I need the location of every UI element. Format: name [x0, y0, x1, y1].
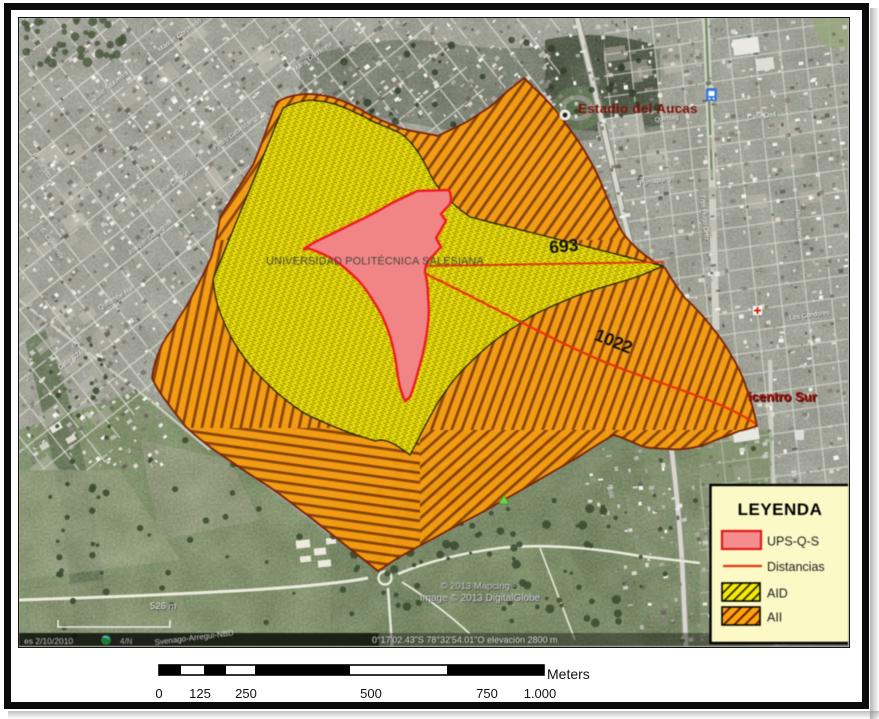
svg-text:es 2/10/2010: es 2/10/2010: [24, 636, 73, 646]
svg-text:Image © 2013 DigitalGlobe: Image © 2013 DigitalGlobe: [419, 593, 540, 604]
svg-text:250: 250: [235, 686, 257, 701]
svg-text:526 m: 526 m: [150, 601, 176, 612]
svg-text:1.000: 1.000: [524, 686, 557, 701]
svg-text:0°17'02.43"S 78°32'54.01"O: 0°17'02.43"S 78°32'54.01"O elevación 280…: [372, 635, 558, 645]
svg-text:icentro Sur: icentro Sur: [748, 389, 817, 404]
svg-text:500: 500: [360, 686, 382, 701]
svg-text:0: 0: [155, 686, 162, 701]
svg-text:UNIVERSIDAD POLITÉCNICA SALESI: UNIVERSIDAD POLITÉCNICA SALESIANA: [266, 254, 484, 267]
svg-text:Estadio del Aucas: Estadio del Aucas: [578, 101, 698, 116]
svg-text:© 2013 Mapcing -: © 2013 Mapcing -: [440, 581, 515, 592]
svg-text:UPS-Q-S: UPS-Q-S: [767, 534, 819, 548]
svg-text:Distancias: Distancias: [767, 560, 825, 574]
svg-text:4/N: 4/N: [120, 637, 133, 646]
svg-text:AID: AID: [767, 586, 788, 600]
svg-text:Meters: Meters: [547, 666, 590, 682]
svg-text:693: 693: [548, 234, 579, 256]
svg-text:Pujili: Pujili: [606, 484, 614, 498]
svg-text:LEYENDA: LEYENDA: [737, 500, 822, 519]
svg-text:750: 750: [476, 686, 498, 701]
svg-text:125: 125: [189, 686, 211, 701]
svg-text:AII: AII: [767, 610, 782, 624]
